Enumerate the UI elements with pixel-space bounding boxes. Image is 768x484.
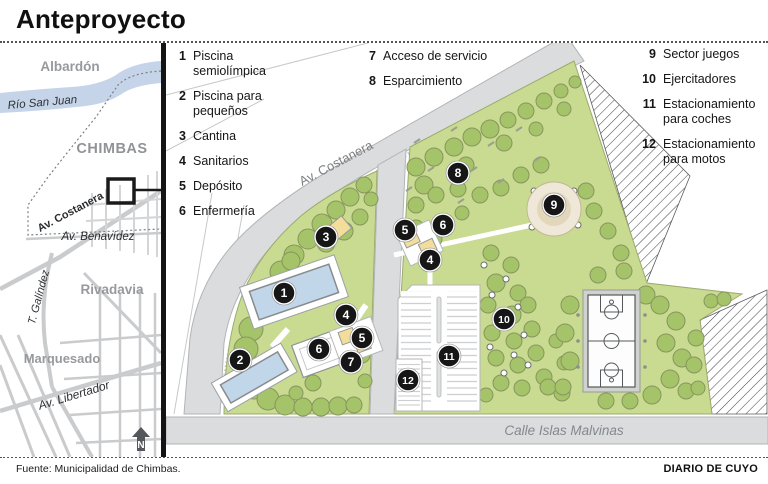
tree-icon [445, 138, 463, 156]
tree-icon [613, 245, 629, 261]
legend-column-1: 1Piscina semiolímpica2Piscina para peque… [172, 49, 305, 219]
marker-number: 1 [281, 286, 288, 300]
plan-marker-5: 5 [393, 218, 417, 242]
legend-number: 6 [172, 204, 186, 219]
tree-icon [506, 333, 522, 349]
tree-icon [528, 345, 544, 361]
legend-item-3: 3Cantina [172, 129, 305, 144]
tree-icon [691, 381, 705, 395]
tree-icon [510, 357, 526, 373]
infographic-page: Anteproyecto [0, 0, 768, 484]
marker-number: 12 [402, 375, 414, 387]
legend-label: Esparcimiento [383, 74, 462, 89]
tree-icon [305, 375, 321, 391]
tree-icon [341, 188, 359, 206]
tree-icon [329, 397, 347, 415]
tree-icon [557, 102, 571, 116]
tree-icon [555, 379, 571, 395]
source-credit: Fuente: Municipalidad de Chimbas. [16, 463, 181, 475]
legend-number: 3 [172, 129, 186, 144]
exercise-station-icon [515, 304, 521, 310]
plan-marker-7: 7 [339, 350, 363, 374]
locator-map-svg: N Albardón Río San Juan CHIMBAS Av. Cost… [0, 43, 161, 457]
legend-column-2: 7Acceso de servicio8Esparcimiento [362, 49, 487, 89]
tree-icon [657, 334, 675, 352]
tree-icon [616, 263, 632, 279]
marker-number: 6 [440, 218, 447, 232]
legend-label: Acceso de servicio [383, 49, 487, 64]
tree-icon [493, 180, 509, 196]
plan-marker-6: 6 [307, 337, 331, 361]
legend-item-9: 9Sector juegos [634, 47, 768, 62]
tree-icon [600, 223, 616, 239]
marker-number: 2 [237, 353, 244, 367]
label-chimbas: CHIMBAS [76, 141, 147, 157]
legend-label: Cantina [193, 129, 236, 144]
north-label: N [137, 440, 144, 451]
tree-icon [540, 379, 556, 395]
plan-marker-10: 10 [492, 307, 516, 331]
tree-icon [514, 380, 530, 396]
publisher-credit: DIARIO DE CUYO [664, 463, 758, 475]
exercise-station-icon [489, 292, 495, 298]
plan-marker-3: 3 [314, 225, 338, 249]
plan-marker-5: 5 [350, 326, 374, 350]
legend-item-10: 10Ejercitadores [634, 72, 768, 87]
exercise-station-icon [521, 332, 527, 338]
marker-number: 3 [323, 230, 330, 244]
tree-icon [481, 120, 499, 138]
tree-icon [463, 128, 481, 146]
locator-map: N Albardón Río San Juan CHIMBAS Av. Cost… [0, 43, 161, 457]
calle-islas-malvinas-road [166, 417, 768, 444]
label-av-benavidez: Av. Benavídez [60, 231, 134, 243]
tree-icon [488, 350, 504, 366]
legend-number: 9 [634, 47, 656, 62]
legend-label: Sector juegos [663, 47, 739, 62]
tree-icon [487, 274, 505, 292]
tree-icon [556, 324, 574, 342]
tree-icon [496, 135, 512, 151]
tree-icon [717, 292, 731, 306]
tree-icon [518, 103, 534, 119]
legend-number: 5 [172, 179, 186, 194]
tree-icon [472, 187, 488, 203]
page-title: Anteproyecto [16, 4, 186, 35]
legend-label: Piscina para pequeños [193, 89, 305, 119]
tree-icon [590, 267, 606, 283]
legend-number: 7 [362, 49, 376, 64]
plan-marker-2: 2 [228, 348, 252, 372]
legend-item-2: 2Piscina para pequeños [172, 89, 305, 119]
marker-number: 6 [316, 342, 323, 356]
marker-number: 4 [427, 253, 434, 267]
legend-number: 4 [172, 154, 186, 169]
label-albardon: Albardón [40, 59, 99, 74]
exercise-station-icon [503, 276, 509, 282]
label-marquesado: Marquesado [24, 351, 101, 366]
legend-label: Enfermería [193, 204, 255, 219]
plan-marker-4: 4 [334, 303, 358, 327]
legend-item-7: 7Acceso de servicio [362, 49, 487, 64]
legend-item-8: 8Esparcimiento [362, 74, 487, 89]
plan-marker-12: 12 [396, 368, 420, 392]
tree-icon [479, 388, 493, 402]
legend-number: 1 [172, 49, 186, 79]
legend-number: 2 [172, 89, 186, 119]
tree-icon [503, 257, 519, 273]
legend-label: Estacionamiento para coches [663, 97, 768, 127]
tree-icon [598, 393, 614, 409]
label-rivadavia: Rivadavia [80, 282, 144, 297]
tree-icon [364, 192, 378, 206]
tree-icon [356, 177, 372, 193]
tree-icon [352, 209, 368, 225]
exercise-station-icon [525, 362, 531, 368]
tree-icon [688, 330, 704, 346]
exercise-station-icon [511, 352, 517, 358]
tree-icon [586, 203, 602, 219]
tree-icon [408, 197, 424, 213]
plan-marker-1: 1 [272, 281, 296, 305]
exercise-station-icon [501, 370, 507, 376]
legend-item-5: 5Depósito [172, 179, 305, 194]
tree-icon [358, 374, 372, 388]
tree-icon [312, 398, 330, 416]
plan-marker-9: 9 [542, 193, 566, 217]
tree-icon [529, 122, 543, 136]
tree-icon [651, 296, 669, 314]
tree-icon [513, 167, 529, 183]
tree-icon [500, 112, 516, 128]
tree-icon [554, 84, 568, 98]
plan-marker-6: 6 [431, 213, 455, 237]
legend-item-6: 6Enfermería [172, 204, 305, 219]
plan-marker-4: 4 [418, 248, 442, 272]
legend-label: Piscina semiolímpica [193, 49, 305, 79]
legend-number: 10 [634, 72, 656, 87]
legend-label: Depósito [193, 179, 242, 194]
label-calle-islas-malvinas: Calle Islas Malvinas [504, 423, 624, 438]
legend-item-4: 4Sanitarios [172, 154, 305, 169]
exercise-station-icon [481, 262, 487, 268]
plan-marker-11: 11 [437, 344, 461, 368]
legend-number: 12 [634, 137, 656, 167]
tree-icon [686, 357, 702, 373]
tree-icon [407, 158, 425, 176]
tree-icon [536, 93, 552, 109]
plan-marker-8: 8 [446, 161, 470, 185]
legend-item-1: 1Piscina semiolímpica [172, 49, 305, 79]
tree-icon [569, 76, 581, 88]
tree-icon [661, 370, 679, 388]
legend-label: Ejercitadores [663, 72, 736, 87]
tree-icon [428, 187, 444, 203]
tree-icon [346, 397, 362, 413]
tree-icon [455, 206, 469, 220]
legend-item-11: 11Estacionamiento para coches [634, 97, 768, 127]
tree-icon [425, 148, 443, 166]
marker-number: 11 [443, 351, 454, 363]
tree-icon [643, 386, 661, 404]
marker-number: 5 [359, 331, 366, 345]
marker-number: 10 [498, 314, 510, 326]
marker-number: 7 [348, 355, 355, 369]
tree-icon [578, 183, 594, 199]
legend-number: 11 [634, 97, 656, 127]
legend-column-3: 9Sector juegos10Ejercitadores11Estaciona… [634, 47, 768, 167]
marker-number: 8 [455, 166, 462, 180]
exercise-station-icon [487, 344, 493, 350]
marker-number: 5 [402, 223, 409, 237]
marker-number: 4 [343, 308, 350, 322]
tree-icon [520, 297, 536, 313]
marker-number: 9 [551, 198, 558, 212]
legend-label: Estacionamiento para motos [663, 137, 768, 167]
tree-icon [483, 245, 499, 261]
tree-icon [493, 375, 509, 391]
tree-icon [667, 312, 685, 330]
legend-label: Sanitarios [193, 154, 249, 169]
tree-icon [704, 294, 718, 308]
tree-icon [480, 297, 496, 313]
legend-number: 8 [362, 74, 376, 89]
tree-icon [622, 393, 638, 409]
basketball-court [576, 290, 647, 392]
tree-icon [289, 386, 303, 400]
tree-icon [561, 296, 579, 314]
tree-icon [294, 398, 312, 416]
legend-item-12: 12Estacionamiento para motos [634, 137, 768, 167]
